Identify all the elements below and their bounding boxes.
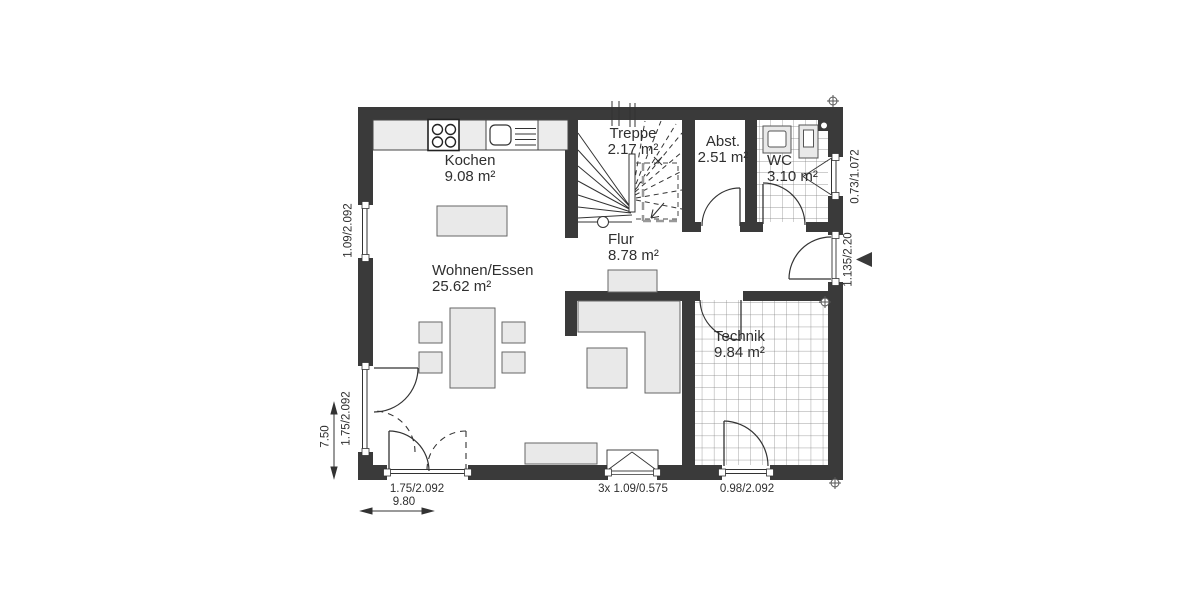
terrace-door-left	[363, 367, 419, 452]
coffee-table	[587, 348, 627, 388]
tiles-technik	[695, 300, 828, 465]
kitchen-counter	[373, 120, 568, 151]
floorplan-drawing	[0, 0, 1200, 600]
room-label-flur: Flur 8.78 m²	[608, 232, 659, 264]
room-area: 25.62 m²	[432, 279, 533, 295]
dim-right-wc-window: 0.73/1.072	[850, 137, 863, 217]
dim-left-window: 1.09/2.092	[343, 191, 356, 271]
room-area: 2.17 m²	[577, 142, 689, 158]
room-label-abst: Abst. 2.51 m²	[692, 134, 754, 166]
room-label-technik: Technik 9.84 m²	[714, 329, 765, 361]
terrace-door-bottom	[388, 431, 467, 474]
room-label-wc: WC 3.10 m²	[767, 153, 818, 185]
entrance-door	[789, 236, 836, 281]
dim-entrance-door: 1.135/2.20	[843, 220, 856, 300]
room-name: Abst.	[692, 134, 754, 150]
room-label-kochen: Kochen 9.08 m²	[410, 153, 530, 185]
room-label-wohnen: Wohnen/Essen 25.62 m²	[432, 263, 533, 295]
room-name: Wohnen/Essen	[432, 263, 533, 279]
dining-table	[450, 308, 495, 388]
shaft-icon	[818, 120, 830, 131]
sideboard-flur	[608, 270, 657, 292]
room-name: Flur	[608, 232, 659, 248]
window-left	[363, 206, 368, 257]
room-name: WC	[767, 153, 818, 169]
kitchen-sink-icon	[486, 120, 538, 150]
floorplan-canvas: Kochen 9.08 m² Treppe 2.17 m² Abst. 2.51…	[0, 0, 1200, 600]
entrance-marker	[856, 252, 872, 267]
abst-door	[702, 188, 740, 226]
dim-left-terrace-door: 1.75/2.092	[341, 379, 354, 459]
dim-bottom-window: 3x 1.09/0.575	[582, 483, 684, 496]
window-bottom	[607, 450, 658, 475]
room-name: Technik	[714, 329, 765, 345]
dim-bottom-terrace-door: 1.75/2.092	[367, 483, 467, 496]
room-name: Treppe	[577, 126, 689, 142]
bench	[525, 443, 597, 464]
room-name: Kochen	[410, 153, 530, 169]
dim-bottom-total: 9.80	[374, 496, 434, 509]
wc-sink-icon	[763, 126, 791, 153]
cooktop-icon	[428, 120, 459, 151]
room-area: 3.10 m²	[767, 169, 818, 185]
dim-left-partial: 7.50	[320, 417, 333, 457]
dim-bottom-technik-door: 0.98/2.092	[696, 483, 798, 496]
room-area: 9.08 m²	[410, 169, 530, 185]
room-area: 2.51 m²	[692, 150, 754, 166]
room-label-treppe: Treppe 2.17 m²	[577, 126, 689, 158]
room-area: 8.78 m²	[608, 248, 659, 264]
room-area: 9.84 m²	[714, 345, 765, 361]
kitchen-island	[437, 206, 507, 236]
